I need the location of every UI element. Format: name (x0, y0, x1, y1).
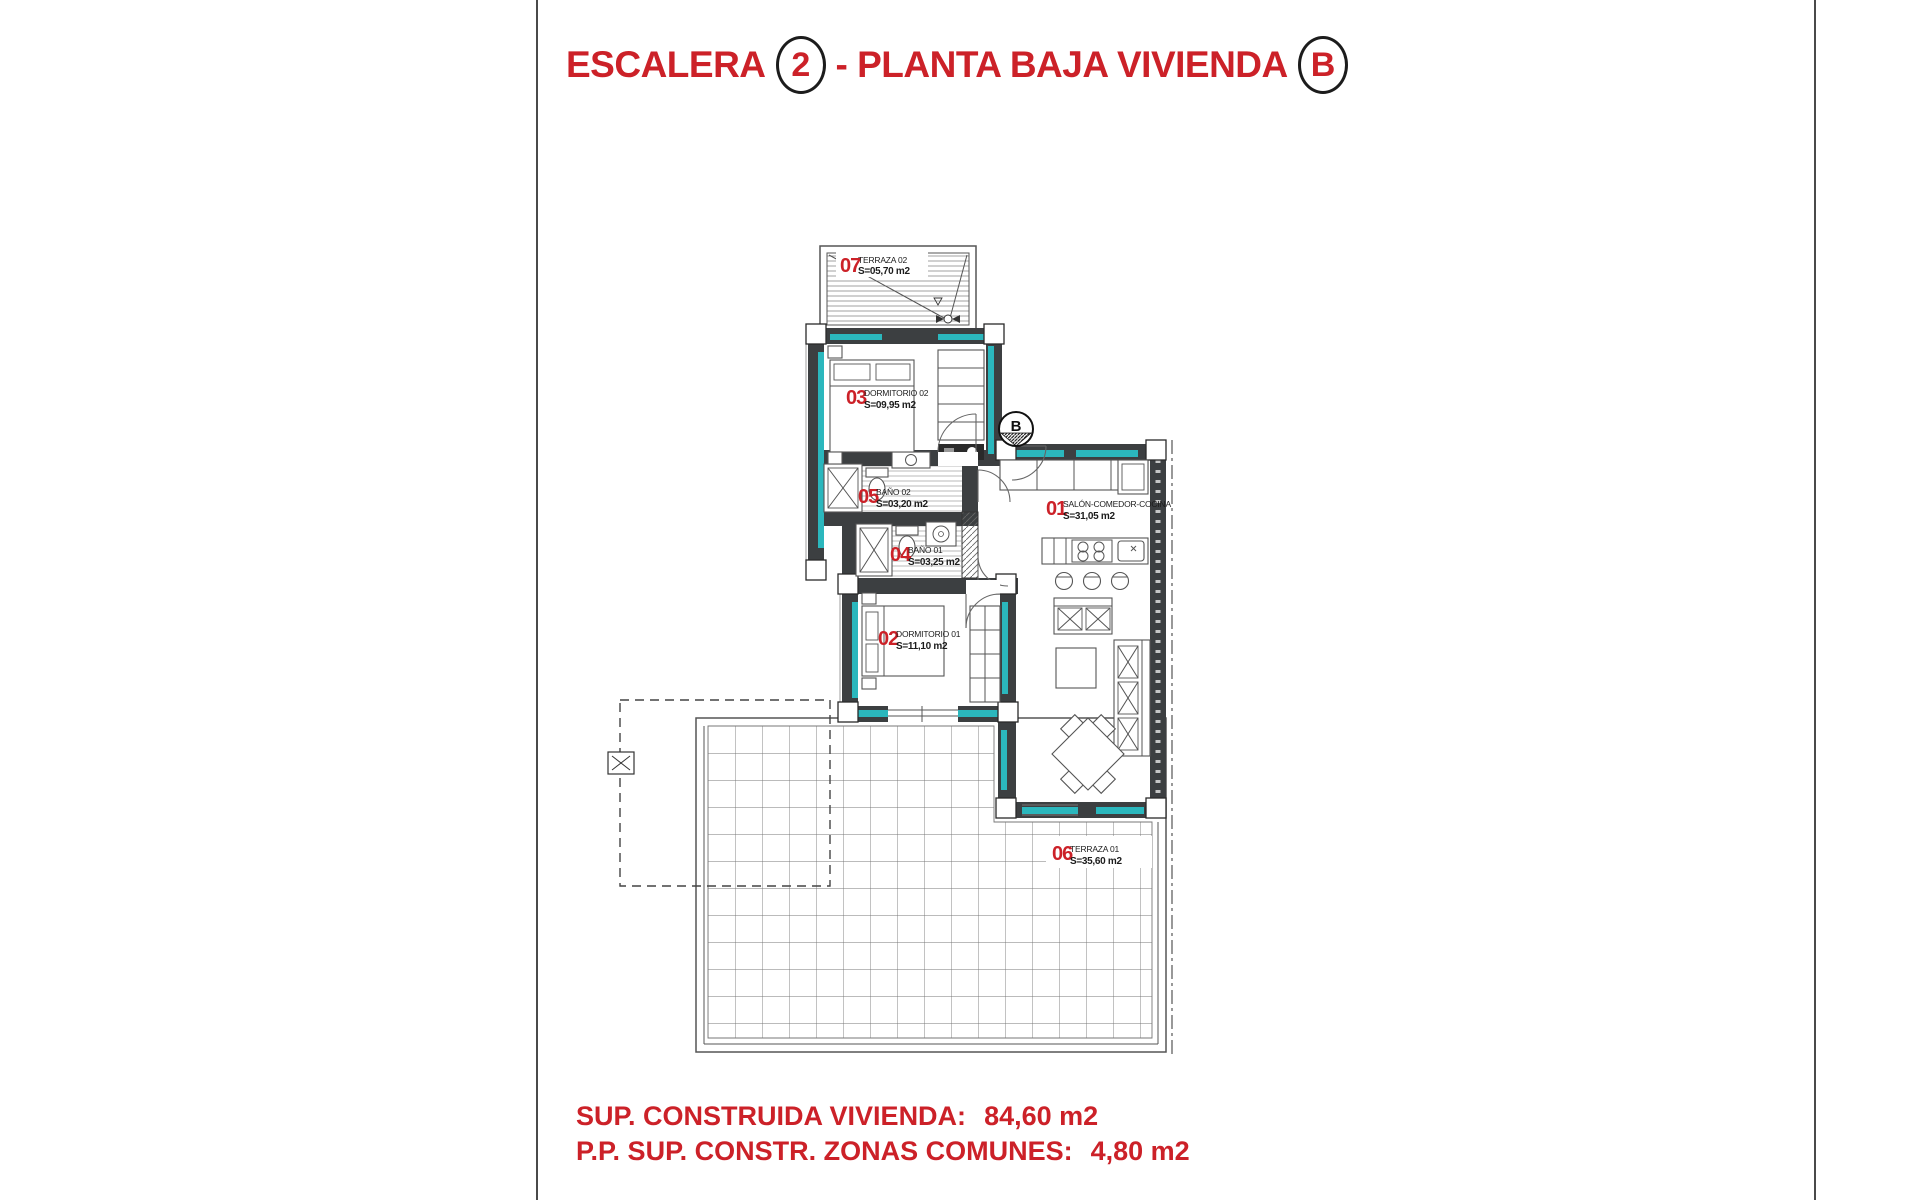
block-compass: B (999, 412, 1033, 446)
compass-letter: B (1011, 418, 1022, 435)
dining-set (1052, 715, 1124, 794)
summary-line-2: P.P. SUP. CONSTR. ZONAS COMUNES:4,80 m2 (576, 1134, 1190, 1169)
living-area (1052, 598, 1150, 793)
floorplan-page: ESCALERA 2 - PLANTA BAJA VIVIENDA B (0, 0, 1920, 1200)
window-dorm1 (888, 706, 958, 722)
room-area: S=03,20 m2 (876, 499, 929, 510)
duct-shaft (962, 512, 978, 578)
room-area: S=35,60 m2 (1070, 856, 1123, 867)
bar-stool (1112, 573, 1129, 590)
toilet-1 (896, 526, 918, 535)
summary-line-2-label: P.P. SUP. CONSTR. ZONAS COMUNES: (576, 1136, 1073, 1166)
room-name: TERRAZA 01 (1070, 844, 1119, 854)
room-label-terraza-1: 06 TERRAZA 01 S=35,60 m2 (1046, 836, 1152, 868)
sofa-three-seat (1114, 640, 1150, 756)
fridge (1118, 460, 1148, 494)
summary-line-2-value: 4,80 m2 (1091, 1136, 1190, 1166)
room-name: DORMITORIO 01 (896, 629, 961, 639)
summary-line-1-value: 84,60 m2 (984, 1101, 1098, 1131)
kitchen (1000, 460, 1148, 590)
sofa-two-seat (1054, 598, 1112, 634)
room-name: BAÑO 01 (908, 545, 943, 555)
drain-symbol (944, 315, 952, 323)
floorplan-drawing: B 07 TERRAZA 02 S=05,70 m2 03 DORMITORIO… (0, 0, 1920, 1200)
room-name: DORMITORIO 02 (864, 388, 929, 398)
room-area: S=09,95 m2 (864, 400, 917, 411)
kitchen-island (1042, 538, 1148, 564)
room-area: S=03,25 m2 (908, 557, 961, 568)
bar-stool (1084, 573, 1101, 590)
room-area: S=11,10 m2 (896, 641, 948, 652)
summary-line-1: SUP. CONSTRUIDA VIVIENDA:84,60 m2 (576, 1099, 1190, 1134)
area-summary: SUP. CONSTRUIDA VIVIENDA:84,60 m2 P.P. S… (576, 1099, 1190, 1169)
wardrobe-2 (938, 350, 984, 440)
bar-stool (1056, 573, 1073, 590)
room-name: SALÓN-COMEDOR-COCINA (1063, 499, 1171, 509)
room-name: TERRAZA 02 (858, 255, 907, 265)
room-label-terraza-2: 07 TERRAZA 02 S=05,70 m2 (840, 255, 911, 277)
room-name: BAÑO 02 (876, 487, 911, 497)
coffee-table (1056, 648, 1096, 688)
room-area: S=31,05 m2 (1063, 511, 1116, 522)
toilet-2 (866, 468, 888, 477)
summary-line-1-label: SUP. CONSTRUIDA VIVIENDA: (576, 1101, 966, 1131)
room-area: S=05,70 m2 (858, 266, 911, 277)
